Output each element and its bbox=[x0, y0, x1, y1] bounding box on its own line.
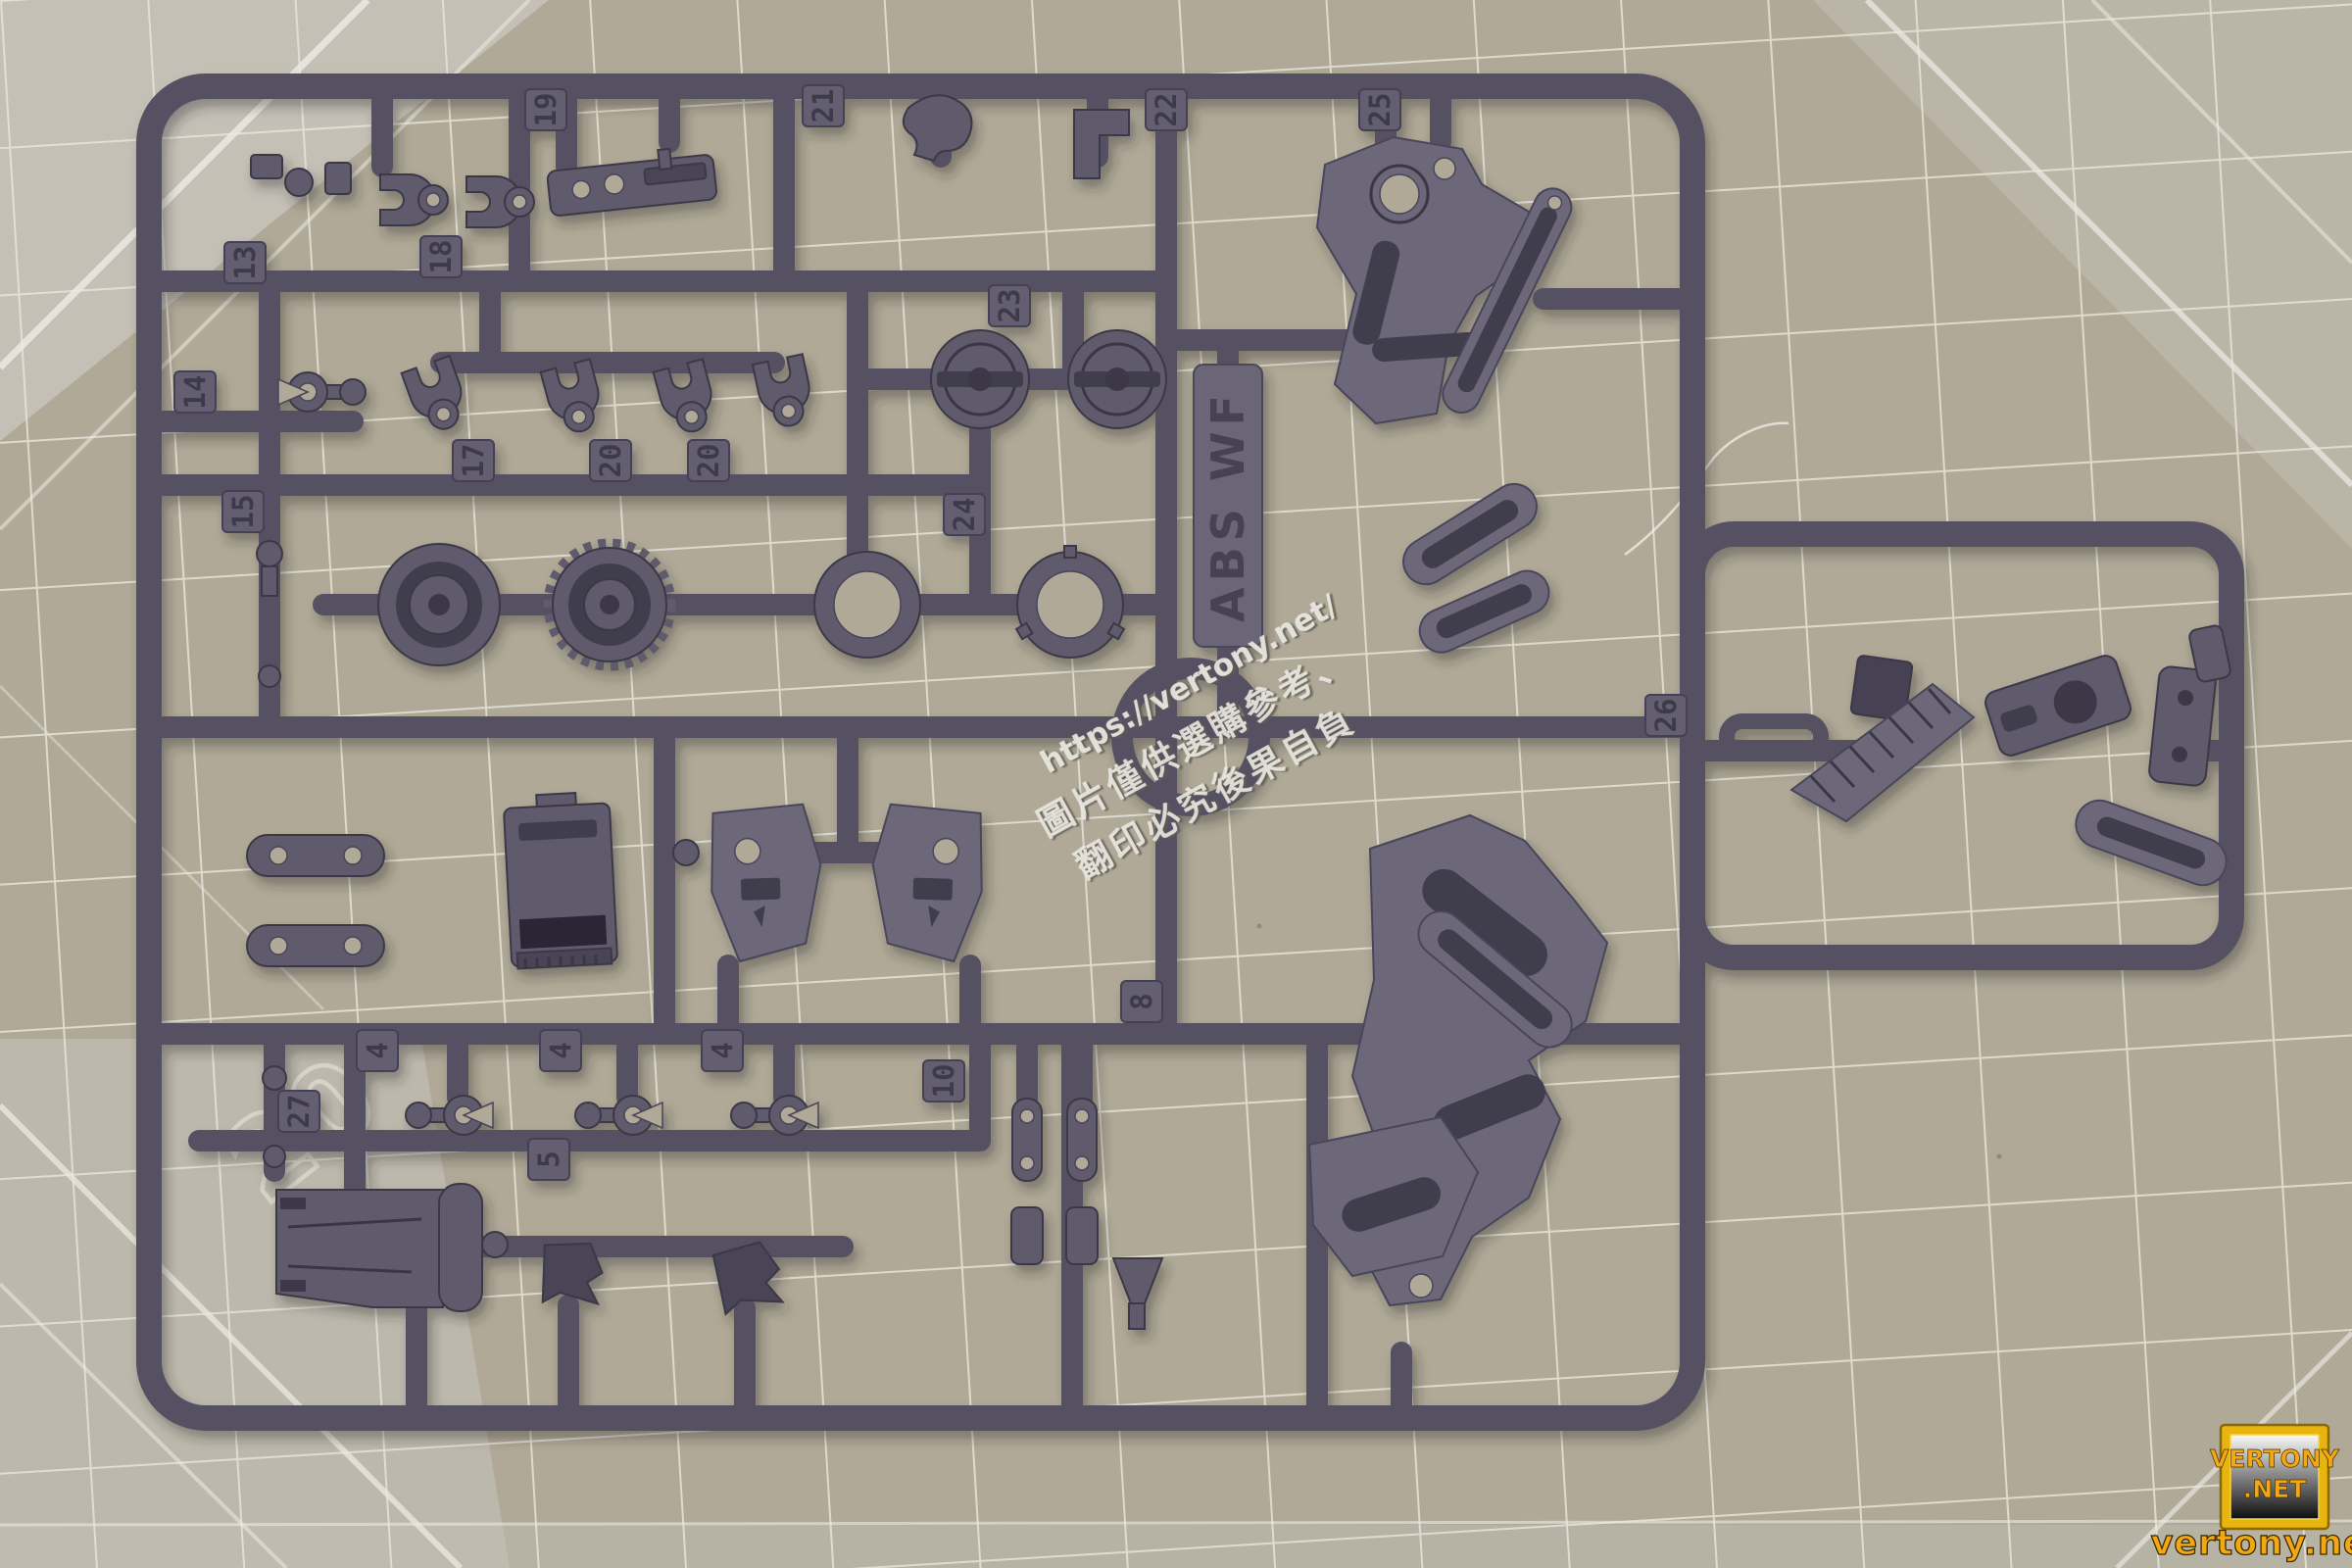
part-tag-14: 14 bbox=[174, 371, 216, 413]
svg-text:18: 18 bbox=[424, 240, 458, 274]
logo-caption: vertony.net bbox=[2151, 1524, 2352, 1563]
part-tag-5: 5 bbox=[528, 1139, 569, 1180]
svg-text:14: 14 bbox=[178, 375, 212, 410]
part-tag-4c: 4 bbox=[702, 1030, 743, 1071]
thruster-block-part bbox=[276, 1184, 482, 1311]
svg-text:10: 10 bbox=[927, 1064, 960, 1099]
part-tag-15: 15 bbox=[222, 491, 264, 532]
svg-text:8: 8 bbox=[1125, 993, 1158, 1009]
svg-text:4: 4 bbox=[706, 1042, 739, 1058]
part-tag-21: 21 bbox=[803, 85, 844, 126]
svg-text:15: 15 bbox=[226, 495, 260, 529]
material-tag: ABS WF bbox=[1194, 365, 1262, 647]
ball-stub bbox=[673, 840, 699, 865]
part-tag-4b: 4 bbox=[540, 1030, 581, 1071]
ball-link bbox=[482, 1232, 508, 1257]
joint-ring-part bbox=[378, 544, 500, 665]
part-tag-26: 26 bbox=[1645, 695, 1687, 736]
part-tag-10: 10 bbox=[923, 1060, 964, 1102]
part-tag-25: 25 bbox=[1359, 89, 1400, 130]
part-tag-19: 19 bbox=[525, 89, 566, 130]
svg-text:5: 5 bbox=[532, 1151, 565, 1167]
link-plate-part bbox=[247, 835, 384, 876]
photo-stage: 20 bbox=[0, 0, 2352, 1568]
svg-text:26: 26 bbox=[1649, 699, 1683, 733]
part-tag-18: 18 bbox=[420, 236, 462, 277]
part-tag-20b: 20 bbox=[688, 440, 729, 481]
svg-text:23: 23 bbox=[993, 289, 1026, 323]
part-tag-22: 22 bbox=[1146, 89, 1187, 130]
part-tag-8: 8 bbox=[1121, 981, 1162, 1022]
svg-text:13: 13 bbox=[228, 246, 262, 280]
link-plate-part bbox=[247, 925, 384, 966]
part-tag-23: 23 bbox=[989, 285, 1030, 326]
part-tag-17: 17 bbox=[453, 440, 494, 481]
material-label: ABS WF bbox=[1201, 389, 1254, 622]
disc-part bbox=[1068, 330, 1166, 428]
part-tag-20a: 20 bbox=[590, 440, 631, 481]
ball-stub bbox=[263, 1066, 286, 1090]
part-tag-4a: 4 bbox=[357, 1030, 398, 1071]
svg-text:19: 19 bbox=[529, 93, 563, 127]
svg-text:17: 17 bbox=[457, 444, 490, 478]
part-tag-27: 27 bbox=[278, 1091, 319, 1132]
svg-text:20: 20 bbox=[594, 444, 627, 478]
svg-text:22: 22 bbox=[1150, 93, 1183, 127]
svg-text:20: 20 bbox=[692, 444, 725, 478]
part-tag-24: 24 bbox=[944, 494, 985, 535]
ring-collar-part bbox=[814, 552, 920, 658]
part-tag-13: 13 bbox=[224, 242, 266, 283]
logo-badge-bottom-text: .NET bbox=[2243, 1475, 2307, 1503]
logo-badge-top-text: VERTONY bbox=[2210, 1445, 2340, 1473]
svg-text:24: 24 bbox=[948, 498, 981, 532]
ball-stub bbox=[264, 1146, 285, 1167]
svg-text:4: 4 bbox=[361, 1042, 394, 1058]
svg-text:21: 21 bbox=[807, 89, 840, 123]
svg-text:4: 4 bbox=[544, 1042, 577, 1058]
svg-text:25: 25 bbox=[1363, 93, 1396, 127]
svg-text:27: 27 bbox=[282, 1095, 316, 1129]
hatch-box-part bbox=[503, 791, 617, 968]
disc-part bbox=[931, 330, 1029, 428]
photo-canvas: 20 bbox=[0, 0, 2352, 1568]
